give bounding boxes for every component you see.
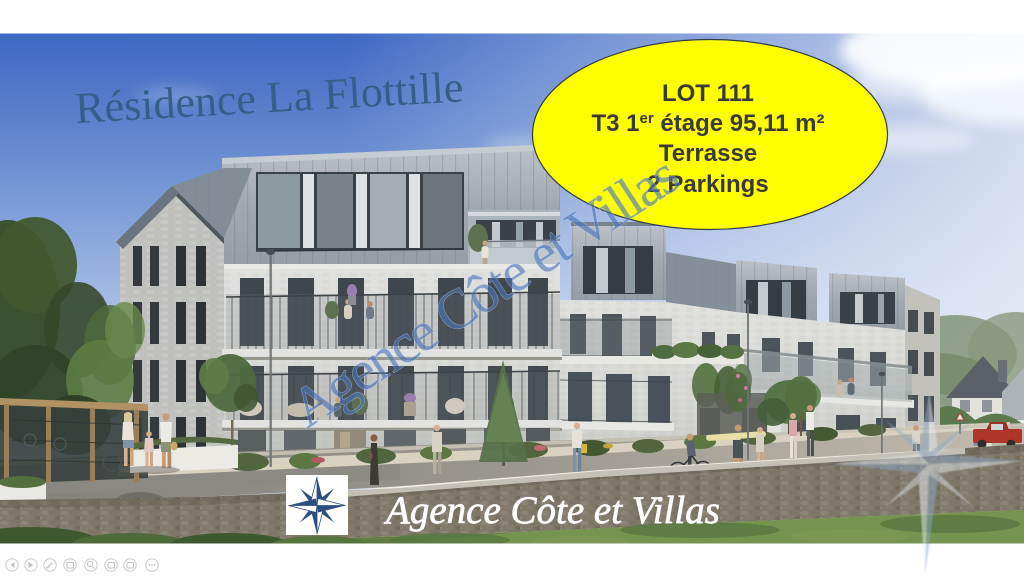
svg-text:Terrasse: Terrasse	[659, 140, 757, 167]
svg-text:T3 1er étage 95,11 m²: T3 1er étage 95,11 m²	[592, 110, 825, 137]
svg-text:Agence Côte et Villas: Agence Côte et Villas	[383, 489, 720, 532]
svg-text:LOT 111: LOT 111	[662, 80, 754, 107]
